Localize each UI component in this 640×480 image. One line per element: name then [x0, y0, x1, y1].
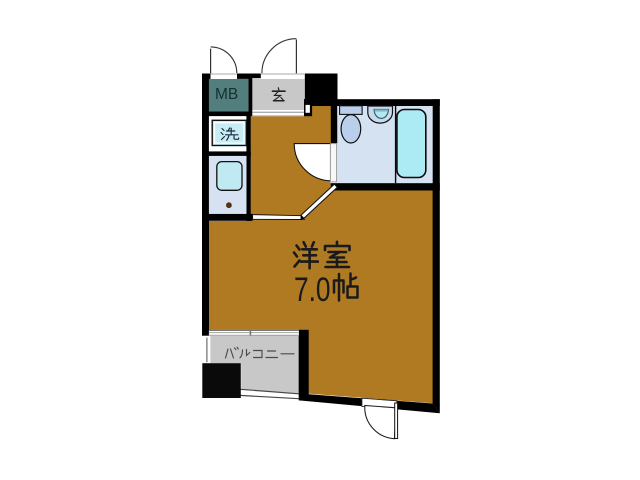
svg-text:7.0: 7.0	[294, 271, 331, 309]
svg-text:MB: MB	[215, 86, 238, 103]
